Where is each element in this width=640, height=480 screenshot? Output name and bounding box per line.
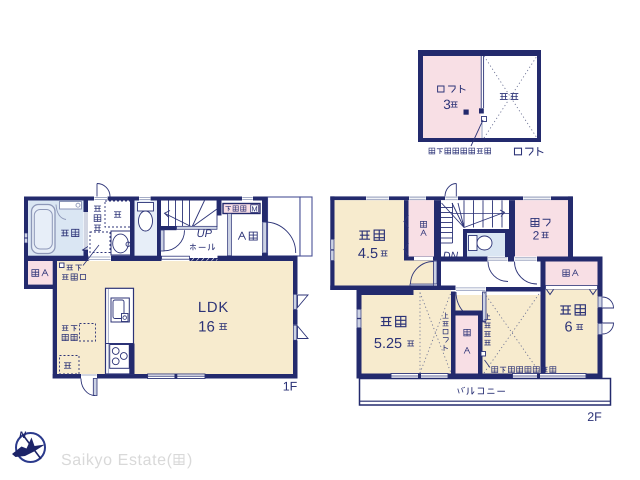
svg-text:2: 2	[533, 229, 540, 243]
svg-text:N: N	[19, 430, 27, 441]
svg-text:M: M	[251, 204, 257, 213]
svg-text:16: 16	[198, 319, 215, 336]
svg-text:3: 3	[443, 97, 451, 112]
svg-text:5.25: 5.25	[374, 336, 402, 352]
svg-text:Saikyo Estate(: Saikyo Estate(	[61, 452, 173, 469]
svg-text:): )	[187, 452, 192, 469]
svg-text:2F: 2F	[587, 410, 602, 424]
svg-text:1F: 1F	[283, 380, 298, 394]
svg-text:LDK: LDK	[198, 300, 229, 316]
svg-text:6: 6	[564, 320, 572, 336]
svg-text:4.5: 4.5	[358, 246, 378, 262]
svg-text:UP: UP	[197, 228, 213, 240]
